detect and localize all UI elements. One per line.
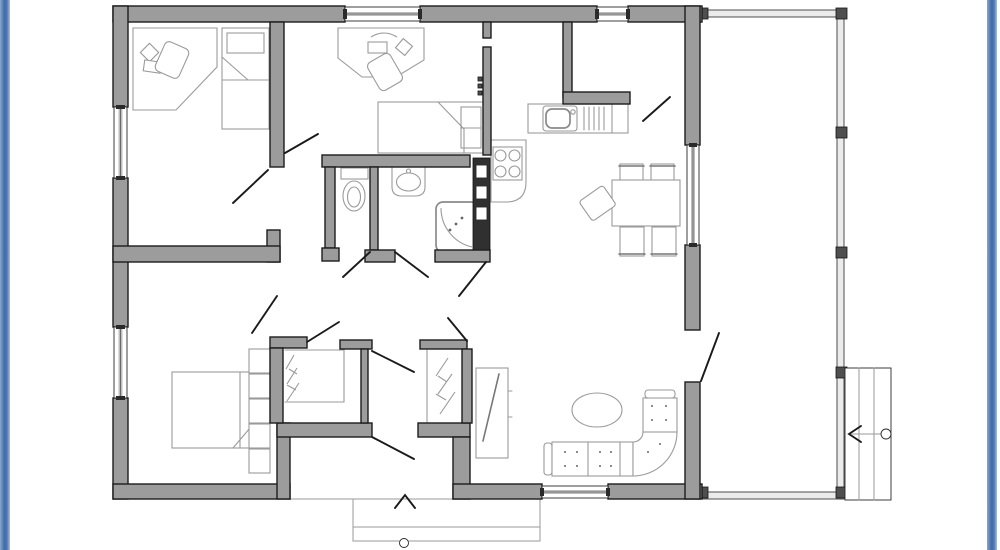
- wall-right: [685, 6, 700, 145]
- tufting-dot: [576, 451, 578, 453]
- vestibule-door-swing: [372, 437, 414, 459]
- window-top-1-cap: [343, 9, 347, 19]
- shower-spray: [449, 229, 452, 232]
- terrace-post: [836, 127, 847, 138]
- window-bottom-living-cap: [606, 488, 610, 496]
- dining: [579, 164, 680, 256]
- bathroom: [392, 167, 478, 252]
- window-top-2: [595, 7, 630, 21]
- dining-chair: [579, 185, 617, 221]
- bath-door-swing: [395, 252, 428, 277]
- office-room: [133, 28, 269, 129]
- terrace-post: [836, 247, 847, 258]
- closet-wall: [361, 349, 368, 423]
- window-left-2: [114, 325, 127, 400]
- wc-wall: [370, 167, 378, 250]
- door-mark: [478, 77, 482, 81]
- office-chair: [154, 40, 191, 80]
- tufting-dot: [599, 451, 601, 453]
- dining-chair: [652, 227, 676, 256]
- tufting-dot: [665, 405, 667, 407]
- bath-wall: [435, 250, 490, 262]
- master-bedroom: [172, 349, 270, 473]
- hall-door-swing: [372, 351, 414, 372]
- monitor: [371, 33, 397, 37]
- bedroom-door-swing: [252, 296, 277, 333]
- terrace-rail-top: [702, 10, 843, 17]
- wall-bottom: [453, 484, 542, 499]
- terrace-door-swing: [701, 333, 719, 381]
- headboard-unit: [249, 424, 270, 448]
- window-top-1: [343, 7, 422, 21]
- partition: [270, 22, 284, 167]
- window-left-2-cap: [116, 325, 125, 329]
- tufting-dot: [564, 451, 566, 453]
- window-top-2-cap: [626, 9, 630, 19]
- tufting-dot: [651, 419, 653, 421]
- wc: [341, 168, 368, 211]
- terrace: [697, 8, 847, 499]
- utility-wall: [563, 22, 572, 97]
- kitchen: [491, 104, 628, 202]
- tufting-dot: [564, 465, 566, 467]
- closet-door-swing: [307, 322, 339, 342]
- tufting-dot: [651, 405, 653, 407]
- office-chair: [366, 52, 405, 93]
- tufting-dot: [610, 465, 612, 467]
- wall-left: [113, 6, 128, 107]
- wall-right: [685, 382, 700, 499]
- floor-plan-canvas: [0, 0, 1000, 550]
- partition: [483, 22, 491, 38]
- closet-shelf: [285, 350, 344, 402]
- porch-start-marker: [400, 539, 409, 548]
- door-mark: [478, 91, 482, 95]
- keyboard: [368, 42, 387, 53]
- terrace-rail-bottom: [702, 492, 845, 499]
- wall-right: [685, 245, 700, 330]
- sofa-armrest: [544, 443, 552, 475]
- closet-door-swing: [448, 318, 467, 341]
- headboard-unit: [249, 349, 270, 373]
- headboard-unit: [249, 374, 270, 398]
- interior-walls: [113, 22, 630, 423]
- closet-wall: [340, 340, 372, 349]
- utility-door-swing: [643, 97, 670, 121]
- shaft-cell: [476, 207, 487, 220]
- hanging-rail-symbol: [286, 355, 299, 401]
- tufting-dot: [659, 443, 661, 445]
- terrace-post: [836, 8, 847, 19]
- sofa-armrest: [645, 390, 675, 398]
- window-right-dining-cap: [689, 143, 697, 147]
- shower-door: [441, 208, 472, 247]
- kids-room-door-swing: [285, 134, 318, 153]
- tufting-dot: [576, 465, 578, 467]
- tufting-dot: [599, 465, 601, 467]
- coffee-table: [572, 393, 622, 427]
- wall-top: [420, 6, 597, 22]
- utility-wall: [563, 92, 630, 104]
- wall-top: [113, 6, 345, 22]
- sofa-corner: [633, 432, 677, 476]
- window-top-2-cap: [595, 9, 599, 19]
- window-bottom-living-cap: [540, 488, 544, 496]
- entry-direction-arrow: [395, 495, 415, 508]
- shaft-cell: [476, 186, 487, 199]
- window-left-1: [114, 105, 127, 180]
- shaft-cell: [476, 165, 487, 178]
- hallway-door-swing: [459, 262, 486, 296]
- headboard-unit: [249, 399, 270, 423]
- double-bed: [172, 372, 250, 448]
- partition: [270, 337, 307, 348]
- office-door-swing: [233, 170, 268, 203]
- stairs-start-marker: [881, 429, 891, 439]
- service-shaft: [473, 158, 490, 250]
- dining-chair: [620, 227, 644, 256]
- window-left-1-cap: [116, 105, 125, 109]
- tufting-dot: [665, 419, 667, 421]
- wall-bottom: [113, 484, 290, 499]
- outdoor-stairs: [845, 368, 891, 500]
- toilet-tank: [341, 168, 368, 179]
- door-mark: [478, 84, 482, 88]
- window-top-1-cap: [418, 9, 422, 19]
- partition: [483, 47, 491, 155]
- window-right-dining-cap: [689, 243, 697, 247]
- mirror-cabinet: [476, 368, 508, 458]
- closet-wall: [420, 340, 467, 349]
- closet-wall: [462, 349, 472, 423]
- kids-room: [338, 28, 484, 153]
- floor-plan-screenshot: [0, 0, 1000, 550]
- sofa-seat-row: [552, 442, 633, 476]
- tufting-dot: [610, 451, 612, 453]
- vestibule-wall: [277, 423, 372, 437]
- shower-spray: [461, 217, 464, 220]
- wc-wall: [325, 167, 335, 248]
- hanging-rail-symbol: [436, 358, 455, 414]
- dining-table: [612, 180, 680, 226]
- partition: [113, 246, 280, 262]
- vestibule-wall: [418, 423, 470, 437]
- wc-wall: [322, 248, 339, 261]
- window-right-dining: [687, 143, 699, 247]
- porch-outline: [353, 499, 540, 541]
- partition: [270, 348, 283, 423]
- closets: [285, 350, 455, 422]
- desk-lamp: [140, 43, 158, 61]
- wc-door-swing: [343, 252, 370, 277]
- tufting-dot: [647, 451, 649, 453]
- entry-porch: [290, 495, 540, 548]
- shower-spray: [455, 223, 458, 226]
- window-left-2-cap: [116, 396, 125, 400]
- window-left-1-cap: [116, 176, 125, 180]
- headboard-unit: [249, 449, 270, 473]
- bath-wall: [322, 155, 470, 167]
- shower: [436, 202, 478, 252]
- living-room: [476, 368, 677, 476]
- desk-lamp: [396, 39, 413, 56]
- window-bottom-living: [540, 486, 610, 498]
- sofa-seat-vert: [643, 398, 677, 432]
